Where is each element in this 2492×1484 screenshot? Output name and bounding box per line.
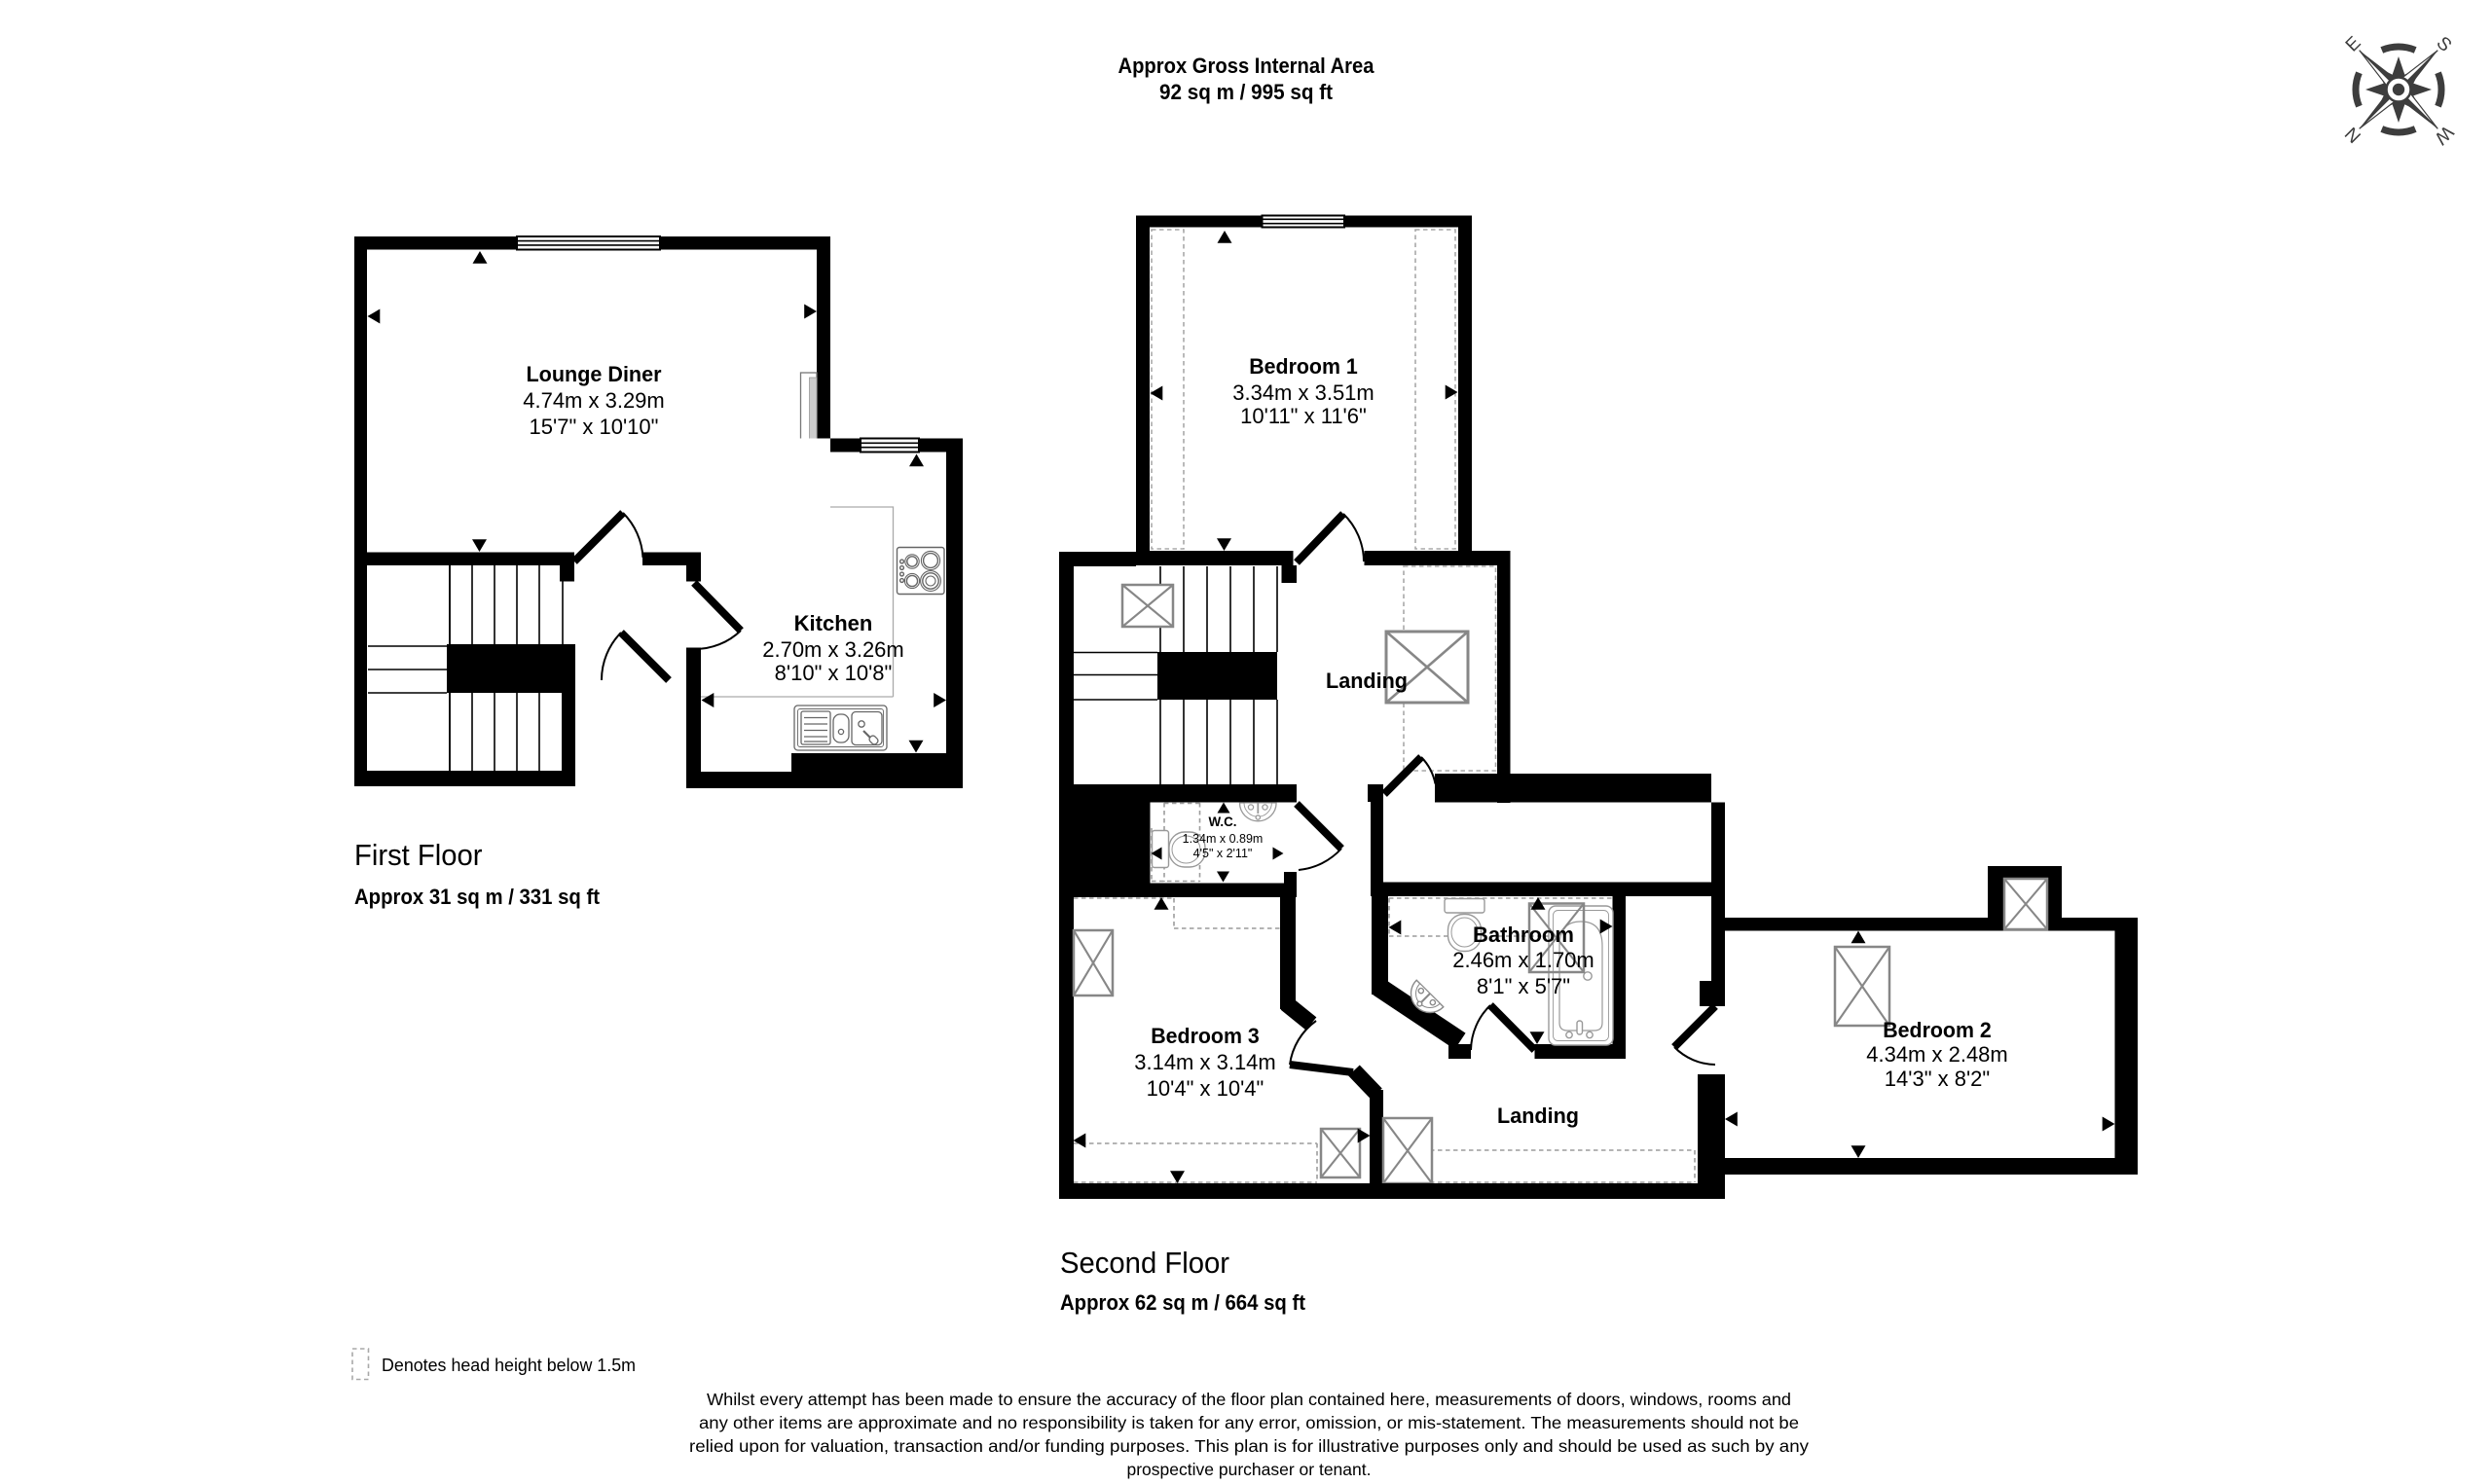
svg-text:4.34m x 2.48m: 4.34m x 2.48m <box>1866 1042 2008 1067</box>
svg-text:First Floor: First Floor <box>354 838 483 872</box>
svg-text:2.46m x 1.70m: 2.46m x 1.70m <box>1452 948 1594 972</box>
svg-text:Bedroom 3: Bedroom 3 <box>1151 1024 1260 1048</box>
svg-text:relied upon for valuation, tra: relied upon for valuation, transaction a… <box>689 1436 1809 1456</box>
svg-text:Whilst every attempt has been: Whilst every attempt has been made to en… <box>707 1390 1791 1409</box>
svg-text:15'7" x 10'10": 15'7" x 10'10" <box>530 415 659 439</box>
svg-text:Approx 62 sq m / 664 sq ft: Approx 62 sq m / 664 sq ft <box>1060 1290 1306 1315</box>
svg-text:Lounge Diner: Lounge Diner <box>527 362 662 386</box>
svg-text:92 sq m / 995 sq ft: 92 sq m / 995 sq ft <box>1159 80 1334 104</box>
svg-text:10'11" x 11'6": 10'11" x 11'6" <box>1240 404 1367 428</box>
svg-text:Approx 31 sq m / 331 sq ft: Approx 31 sq m / 331 sq ft <box>354 885 601 909</box>
svg-text:3.14m x 3.14m: 3.14m x 3.14m <box>1134 1050 1276 1074</box>
svg-text:Landing: Landing <box>1326 669 1408 693</box>
svg-text:Kitchen: Kitchen <box>794 611 873 635</box>
svg-text:8'1" x 5'7": 8'1" x 5'7" <box>1477 974 1570 998</box>
svg-text:prospective purchaser or tenan: prospective purchaser or tenant. <box>1127 1460 1372 1479</box>
svg-text:3.34m x 3.51m: 3.34m x 3.51m <box>1232 380 1374 405</box>
svg-text:Denotes head height below 1.5m: Denotes head height below 1.5m <box>382 1356 636 1375</box>
svg-text:Approx Gross Internal Area: Approx Gross Internal Area <box>1118 54 1375 78</box>
svg-text:1.34m x 0.89m: 1.34m x 0.89m <box>1183 832 1264 846</box>
svg-text:W.C.: W.C. <box>1209 814 1237 829</box>
svg-text:Bedroom 1: Bedroom 1 <box>1249 354 1358 379</box>
svg-text:4.74m x 3.29m: 4.74m x 3.29m <box>523 388 665 413</box>
svg-text:Bathroom: Bathroom <box>1473 923 1574 947</box>
svg-text:Landing: Landing <box>1497 1104 1579 1128</box>
svg-text:14'3" x 8'2": 14'3" x 8'2" <box>1885 1067 1990 1091</box>
svg-text:8'10" x 10'8": 8'10" x 10'8" <box>775 661 893 685</box>
svg-text:any other items are approximat: any other items are approximate and no r… <box>699 1413 1799 1432</box>
svg-text:4'5" x 2'11": 4'5" x 2'11" <box>1193 847 1253 860</box>
svg-text:Bedroom 2: Bedroom 2 <box>1883 1018 1992 1042</box>
svg-text:2.70m x 3.26m: 2.70m x 3.26m <box>762 637 904 662</box>
svg-text:Second Floor: Second Floor <box>1060 1246 1229 1280</box>
svg-text:10'4" x 10'4": 10'4" x 10'4" <box>1147 1076 1264 1101</box>
